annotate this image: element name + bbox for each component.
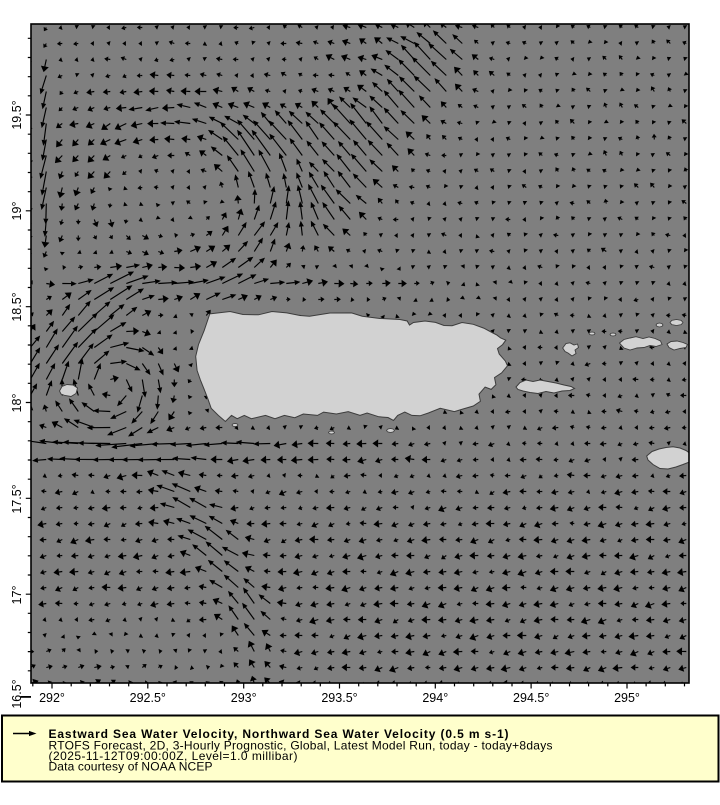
svg-text:295°: 295°	[614, 691, 640, 705]
svg-text:17°: 17°	[10, 586, 24, 605]
svg-text:19°: 19°	[10, 202, 24, 221]
svg-text:292°: 292°	[39, 691, 65, 705]
svg-text:294.5°: 294.5°	[513, 691, 549, 705]
svg-text:18.5°: 18.5°	[10, 292, 24, 321]
svg-text:293.5°: 293.5°	[321, 691, 357, 705]
svg-text:294°: 294°	[422, 691, 448, 705]
svg-text:17.5°: 17.5°	[10, 484, 24, 513]
svg-text:19.5°: 19.5°	[10, 100, 24, 129]
svg-text:18°: 18°	[10, 394, 24, 413]
svg-text:292.5°: 292.5°	[130, 691, 166, 705]
svg-text:293°: 293°	[231, 691, 257, 705]
svg-text:16.5°: 16.5°	[10, 679, 24, 708]
svg-text:Data courtesy of NOAA NCEP: Data courtesy of NOAA NCEP	[49, 760, 213, 774]
